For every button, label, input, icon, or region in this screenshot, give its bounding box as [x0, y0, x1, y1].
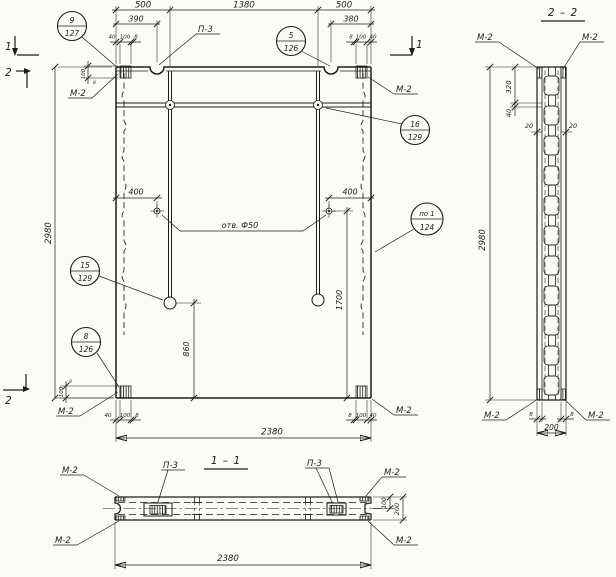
dim-200-sec2: 200 [544, 423, 559, 432]
dim-8-sec2-left: 8 [529, 412, 533, 418]
section-cut-markers: 1 2 1 2 [3, 36, 424, 407]
main-elevation-view [116, 66, 371, 398]
section-2-2: 2 – 2 2980 320 40 20 [475, 7, 610, 436]
keyed-edge-left [122, 73, 126, 335]
dim-100-tr: 100 [356, 35, 367, 41]
dim-2380-main: 2380 [261, 428, 283, 438]
dim-8-br: 8 [348, 413, 352, 419]
hole-note: отв. Ф50 [222, 221, 258, 230]
joint-node-left [166, 101, 175, 110]
balloon-bottom: 126 [79, 345, 94, 354]
balloon-8-126: 8 126 [72, 328, 120, 388]
dim-8-bl: 8 [135, 413, 139, 419]
dim-380: 380 [343, 15, 358, 24]
balloon-bottom: 129 [408, 133, 423, 142]
dim-40-bl: 40 [105, 413, 112, 419]
dim-1700: 1700 [335, 290, 344, 310]
m2-text: М-2 [396, 85, 412, 95]
m2-text: М-2 [396, 536, 412, 546]
balloon-top: 9 [70, 16, 75, 25]
balloon-top: 16 [410, 120, 420, 129]
dim-20-left: 20 [525, 122, 533, 130]
balloon-top: по 1 [419, 210, 435, 218]
section-1-1-dimensions: 100 200 2380 [115, 494, 407, 569]
m2-text: М-2 [62, 466, 78, 476]
p3-text: П-3 [163, 461, 178, 471]
section-2-2-dimensions: 2980 320 40 20 20 8 8 200 [478, 64, 577, 436]
balloon-bottom: 126 [284, 44, 299, 53]
label-m2-sec2-top-right: М-2 [563, 33, 604, 69]
cut-digit: 2 [5, 67, 13, 79]
embed-m2-top-right [356, 66, 367, 78]
label-p3-main: П-3 [159, 25, 220, 65]
blueprint-page: 500 1380 500 390 380 40 100 8 8 100 40 1… [0, 0, 616, 577]
embed-p3-right [327, 503, 346, 515]
dim-40-sec2: 40 [505, 109, 513, 117]
balloon-top: 5 [289, 31, 294, 40]
dim-8-v-bottom: 8 [69, 379, 72, 385]
dim-390: 390 [128, 15, 143, 24]
m2-text: М-2 [582, 33, 598, 43]
panel-working-drawing: 500 1380 500 390 380 40 100 8 8 100 40 1… [0, 0, 616, 577]
balloon-top: 15 [80, 261, 90, 270]
balloon-16-129: 16 129 [326, 108, 430, 145]
dim-100-bl: 100 [120, 413, 131, 419]
dim-100-tl: 100 [120, 35, 131, 41]
section-1-1: 1 – 1 100 200 [53, 455, 418, 569]
section-1-1-title: 1 – 1 [211, 455, 241, 467]
embed-m2-sec1-tl [116, 497, 125, 501]
label-p3-sec1-right: П-3 [305, 459, 338, 502]
label-m2-sec1-bottom-left: М-2 [53, 521, 119, 546]
balloon-top: 8 [84, 332, 89, 341]
section-1-1-bar [103, 497, 383, 520]
embed-m2-sec2-top-left [537, 67, 542, 78]
dim-320: 320 [505, 80, 513, 94]
m2-text: М-2 [588, 411, 604, 421]
cut-2-top: 2 [5, 67, 31, 88]
balloon-po1-124: по 1 124 [375, 203, 443, 252]
section-2-2-title: 2 – 2 [548, 7, 578, 19]
p3-text: П-3 [198, 25, 213, 35]
cut-digit: 1 [5, 41, 13, 53]
balloon-bottom: 124 [420, 223, 435, 232]
dim-2980-main: 2980 [44, 222, 54, 244]
dim-500-left: 500 [135, 1, 151, 11]
dim-500-right: 500 [336, 1, 352, 11]
dim-8-tr: 8 [349, 35, 353, 41]
dim-2980-sec2: 2980 [478, 229, 488, 251]
embed-m2-bottom-right [356, 386, 367, 398]
p3-text: П-3 [307, 459, 322, 469]
dim-8-v-top: 8 [93, 80, 96, 86]
cut-1-left: 1 [5, 36, 39, 56]
m2-text: М-2 [384, 468, 400, 478]
balloon-bottom: 127 [65, 29, 80, 38]
joint-node-right [314, 101, 323, 110]
embed-m2-sec1-br [360, 516, 369, 520]
dim-860: 860 [182, 341, 191, 356]
m2-text: М-2 [70, 89, 86, 99]
label-m2-sec1-top-right: М-2 [366, 468, 406, 496]
label-m2-top-right: М-2 [368, 77, 418, 95]
dim-40-tr: 40 [370, 35, 377, 41]
keyed-joint-chain [544, 67, 559, 406]
m2-text: М-2 [396, 406, 412, 416]
embed-m2-sec1-bl [116, 516, 125, 520]
dim-200-sec1: 200 [393, 503, 401, 515]
label-m2-sec1-bottom-right: М-2 [368, 521, 418, 546]
section-2-2-column [537, 67, 566, 406]
embed-m2-bottom-left [120, 386, 131, 398]
panel-outline [116, 67, 371, 398]
balloon-5-126: 5 126 [277, 27, 331, 67]
balloon-bottom: 129 [78, 274, 93, 283]
dim-400-left: 400 [128, 188, 143, 197]
dim-100-v-bottom: 100 [59, 386, 65, 397]
label-p3-sec1-left: П-3 [158, 461, 185, 502]
m2-text: М-2 [55, 536, 71, 546]
embed-m2-top-left [120, 66, 131, 78]
cut-2-bottom: 2 [3, 374, 30, 407]
label-m2-sec1-top-left: М-2 [60, 466, 119, 496]
embed-m2-sec2-bottom-left [537, 389, 542, 400]
dim-400-right: 400 [342, 188, 357, 197]
dim-8-sec2-right: 8 [570, 412, 574, 418]
embed-p3-left [144, 503, 172, 516]
m2-text: М-2 [477, 33, 493, 43]
dim-2380-sec1: 2380 [217, 554, 239, 564]
dim-100-v-top: 100 [81, 68, 87, 79]
embed-m2-sec1-tr [360, 497, 369, 501]
keyed-edge-right [361, 73, 365, 335]
dim-20-right: 20 [569, 122, 577, 130]
dim-40-tl: 40 [109, 35, 116, 41]
dim-8-tl: 8 [134, 35, 138, 41]
cut-digit: 1 [416, 39, 424, 51]
dim-100-sec1: 100 [381, 497, 388, 509]
cut-1-right: 1 [390, 36, 424, 56]
embed-m2-sec2-bottom-right [561, 389, 566, 400]
dim-1380: 1380 [233, 1, 255, 11]
label-m2-sec2-top-left: М-2 [475, 33, 539, 69]
m2-text: М-2 [484, 411, 500, 421]
m2-text: М-2 [58, 407, 74, 417]
dim-40-br: 40 [370, 413, 377, 419]
label-m2-bottom-right: М-2 [372, 399, 418, 416]
dim-100-br: 100 [356, 413, 367, 419]
cut-digit: 2 [5, 395, 13, 407]
internal-beam [116, 103, 371, 107]
